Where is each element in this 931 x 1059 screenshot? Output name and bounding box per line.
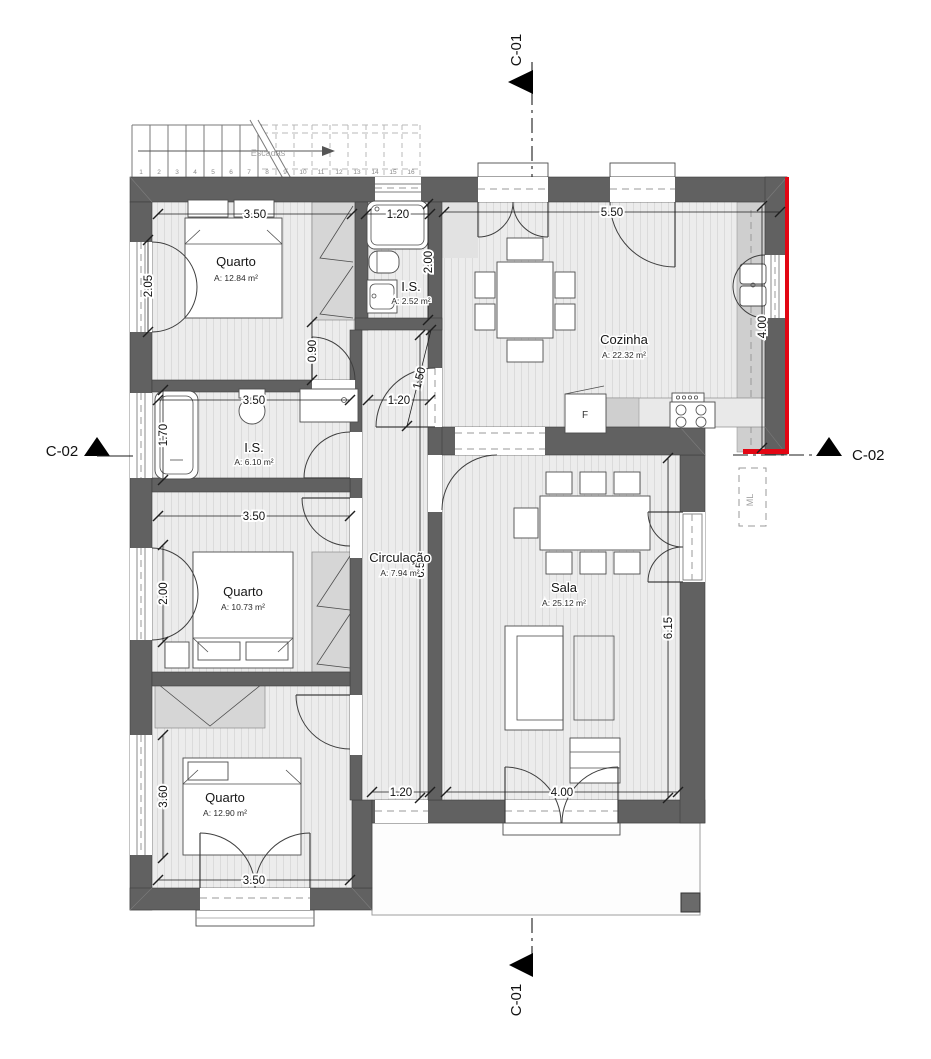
dimension-label: 3.60	[158, 785, 170, 807]
fridge-label: F	[582, 410, 588, 421]
svg-text:I.S.: I.S.	[401, 279, 421, 294]
svg-text:Sala: Sala	[551, 580, 578, 595]
room-label-quarto-3: Quarto A: 12.90 m²	[203, 790, 247, 818]
stair-step-number: 9	[283, 169, 287, 176]
entry-step	[478, 163, 548, 177]
wardrobe	[155, 680, 265, 728]
dimension-label: 2.00	[423, 251, 435, 273]
svg-text:A: 2.52 m²: A: 2.52 m²	[391, 296, 430, 306]
stair-step-number: 5	[211, 169, 215, 176]
floor-plan-canvas: Escadas 12345678910111213141516	[0, 0, 931, 1059]
stair-step-number: 2	[157, 169, 161, 176]
wardrobe	[312, 202, 355, 320]
section-marker-c02-left: C-02	[46, 437, 133, 460]
svg-text:A: 12.90 m²: A: 12.90 m²	[203, 808, 247, 818]
entry-step	[610, 163, 675, 177]
svg-text:C-02: C-02	[852, 447, 885, 464]
svg-text:Quarto: Quarto	[205, 790, 245, 805]
svg-text:Quarto: Quarto	[216, 254, 256, 269]
sofa	[505, 626, 563, 730]
stairs: Escadas 12345678910111213141516	[132, 120, 420, 182]
svg-text:Cozinha: Cozinha	[600, 332, 648, 347]
wardrobe	[312, 552, 352, 672]
dimension-label: 1.20	[388, 395, 410, 407]
svg-text:A: 22.32 m²: A: 22.32 m²	[602, 350, 646, 360]
dimension-label: 3.50	[243, 511, 265, 523]
toilet	[369, 251, 399, 273]
room-label-quarto-2: Quarto A: 10.73 m²	[221, 584, 265, 612]
tv-unit	[570, 738, 620, 783]
stair-step-number: 4	[193, 169, 197, 176]
svg-text:A: 6.10 m²: A: 6.10 m²	[234, 457, 273, 467]
section-marker-c01-top: C-01	[508, 34, 533, 177]
column	[681, 893, 700, 912]
pass-through-opening	[455, 427, 545, 455]
stairs-label: Escadas	[251, 148, 286, 158]
dimension-label: 2.00	[158, 582, 170, 604]
section-marker-c01-bottom: C-01	[508, 918, 533, 1016]
section-arrow-icon	[509, 953, 533, 977]
sink	[300, 389, 358, 422]
dimension-label: 4.00	[757, 316, 769, 338]
svg-text:A: 10.73 m²: A: 10.73 m²	[221, 602, 265, 612]
svg-text:I.S.: I.S.	[244, 440, 264, 455]
washer-label: ML	[745, 494, 755, 507]
dimension-label: 6.15	[663, 617, 675, 639]
dimension-label: 1.70	[158, 424, 170, 446]
bedroom-door-opening	[200, 888, 310, 910]
bed	[183, 758, 301, 855]
svg-text:Quarto: Quarto	[223, 584, 263, 599]
svg-text:C-01: C-01	[508, 34, 525, 67]
washing-machine: ML	[739, 468, 766, 526]
section-arrow-icon	[84, 437, 110, 456]
stair-step-number: 10	[299, 169, 307, 176]
dimension-label: 5.50	[601, 207, 623, 219]
svg-text:Circulação: Circulação	[369, 550, 430, 565]
floor-plan: Escadas 12345678910111213141516	[0, 0, 931, 1059]
stair-step-number: 15	[389, 169, 397, 176]
stair-step-number: 8	[265, 169, 269, 176]
stair-direction-arrow	[322, 146, 335, 156]
balcony-door-opening	[680, 512, 705, 582]
svg-text:C-01: C-01	[508, 984, 525, 1017]
section-arrow-icon	[816, 437, 842, 456]
stair-step-number: 14	[371, 169, 379, 176]
stair-step-number: 3	[175, 169, 179, 176]
dimension-label: 1.20	[387, 209, 409, 221]
svg-text:A: 7.94 m²: A: 7.94 m²	[380, 568, 419, 578]
stair-step-number: 13	[353, 169, 361, 176]
section-arrow-icon	[508, 70, 533, 94]
entry-door-opening	[478, 177, 548, 202]
dimension-label: 3.50	[243, 875, 265, 887]
dimension-label: 2.05	[143, 275, 155, 297]
room-label-cozinha: Cozinha A: 22.32 m²	[600, 332, 648, 360]
stair-step-number: 1	[139, 169, 143, 176]
stair-step-number: 11	[318, 169, 325, 176]
stair-step-number: 7	[247, 169, 251, 176]
dimension-label: 1.20	[390, 787, 412, 799]
stair-step-number: 6	[229, 169, 233, 176]
dimension-label: 0.90	[307, 340, 319, 362]
door-opening	[610, 177, 675, 202]
dimension-label: 4.00	[551, 787, 573, 799]
svg-text:C-02: C-02	[46, 443, 79, 460]
dimension-label: 3.50	[244, 209, 266, 221]
stair-step-number: 16	[407, 169, 415, 176]
svg-text:A: 12.84 m²: A: 12.84 m²	[214, 273, 258, 283]
dimension-label: 3.50	[243, 395, 265, 407]
room-label-quarto-1: Quarto A: 12.84 m²	[214, 254, 258, 283]
stair-step-number: 12	[335, 169, 343, 176]
svg-text:A: 25.12 m²: A: 25.12 m²	[542, 598, 586, 608]
